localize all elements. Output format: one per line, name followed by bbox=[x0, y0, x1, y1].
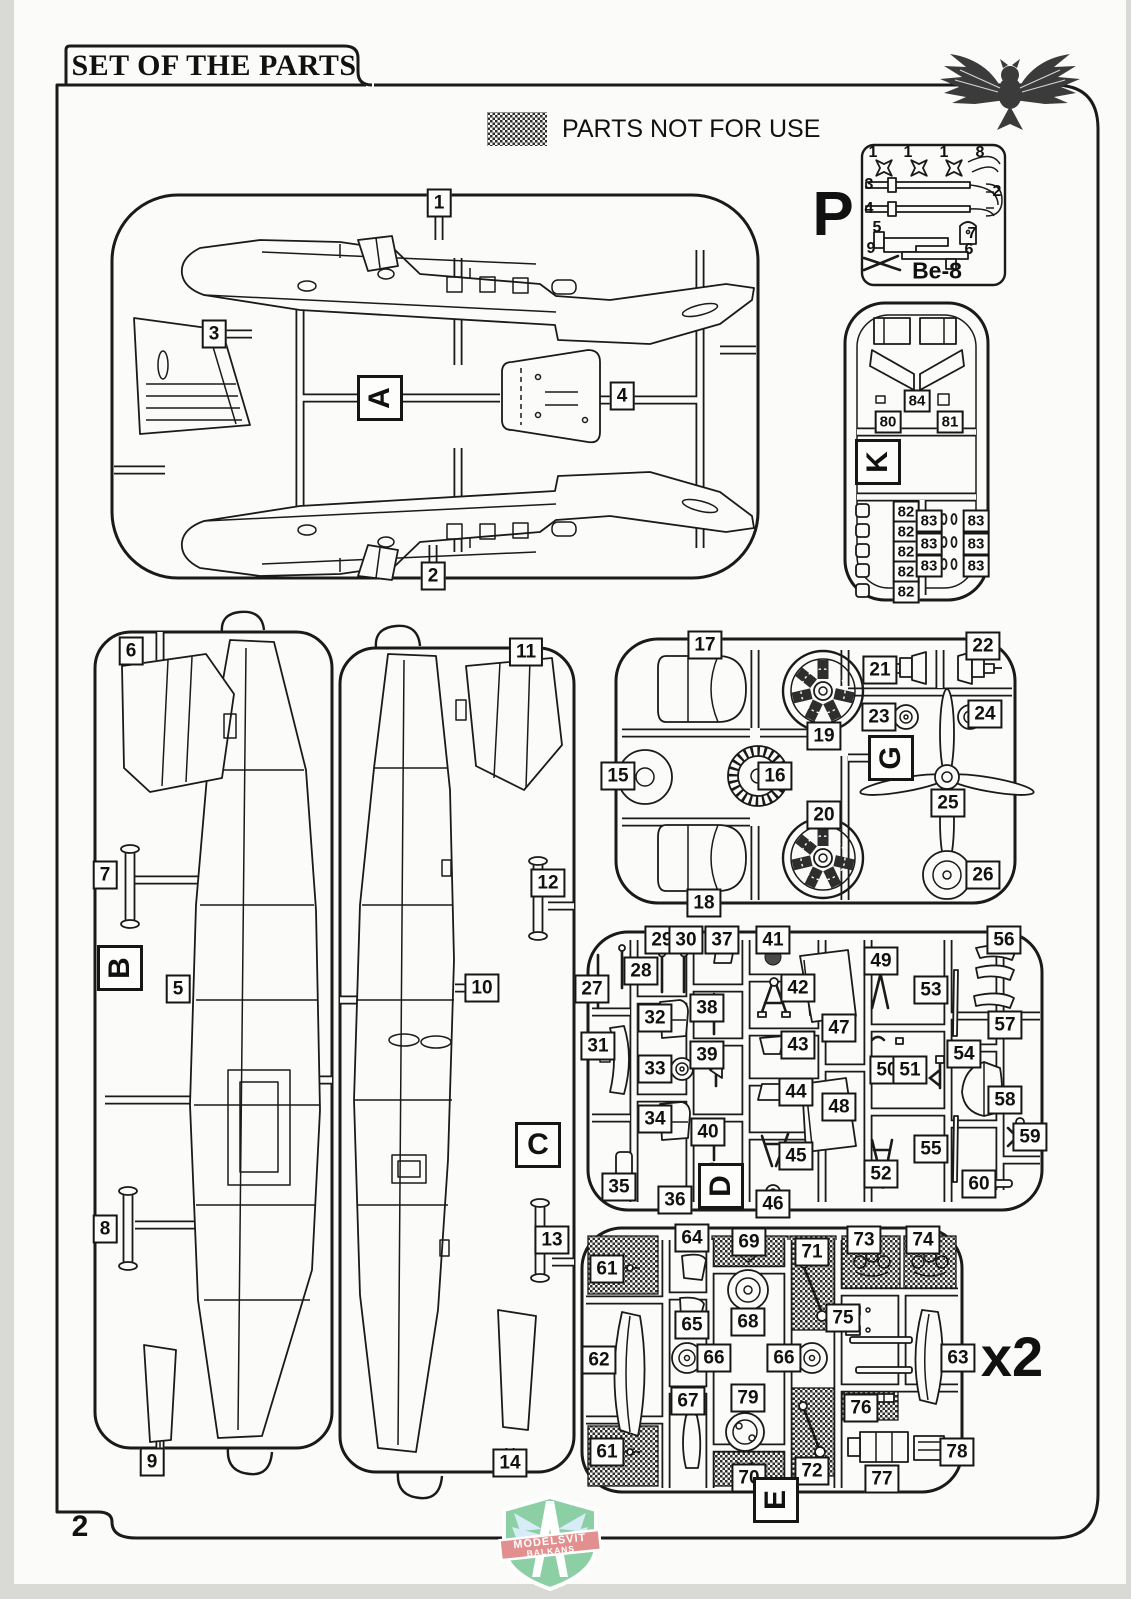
part-9-blade bbox=[144, 1345, 176, 1452]
part-number-label: 14 bbox=[492, 1449, 527, 1478]
part-number-label: 18 bbox=[686, 889, 721, 918]
part-number-label: 83 bbox=[916, 555, 943, 578]
part-number-label: 10 bbox=[464, 974, 499, 1003]
part-number-label: 41 bbox=[755, 926, 790, 955]
part-number-label: 83 bbox=[963, 555, 990, 578]
part-number-label: 64 bbox=[674, 1224, 709, 1253]
part-number-label: 80 bbox=[875, 411, 902, 434]
part-number-label: 45 bbox=[778, 1142, 813, 1171]
part-number-label: 7 bbox=[93, 861, 118, 890]
part-number-label: 53 bbox=[913, 976, 948, 1005]
sprue-letter-label: E bbox=[753, 1477, 799, 1523]
pe-part-number: 7 bbox=[968, 226, 977, 242]
page-title: SET OF THE PARTS bbox=[66, 46, 362, 85]
part-number-label: 28 bbox=[623, 957, 658, 986]
part-number-label: 82 bbox=[893, 581, 920, 604]
part-number-label: 51 bbox=[892, 1056, 927, 1085]
part-number-label: 31 bbox=[580, 1032, 615, 1061]
part-number-label: 57 bbox=[987, 1011, 1022, 1040]
sprue-letter-label: B bbox=[97, 945, 143, 991]
part-number-label: 2 bbox=[421, 562, 446, 591]
part-number-label: 8 bbox=[93, 1215, 118, 1244]
part-number-label: 21 bbox=[862, 656, 897, 685]
pe-part-number: 1 bbox=[904, 145, 913, 161]
part-number-label: 34 bbox=[637, 1105, 672, 1134]
part-number-label: 24 bbox=[967, 700, 1002, 729]
part-number-label: 63 bbox=[940, 1344, 975, 1373]
sprue-p-kit-name: Be-8 bbox=[912, 260, 962, 283]
part-number-label: 61 bbox=[589, 1255, 624, 1284]
part-number-label: 6 bbox=[119, 637, 144, 666]
part-number-label: 17 bbox=[687, 631, 722, 660]
part-number-label: 40 bbox=[690, 1118, 725, 1147]
sprue-letter-label: C bbox=[515, 1122, 561, 1168]
sprue-e-quantity-note: x2 bbox=[981, 1329, 1043, 1385]
part-number-label: 62 bbox=[581, 1346, 616, 1375]
part-number-label: 79 bbox=[730, 1384, 765, 1413]
part-number-label: 1 bbox=[427, 189, 452, 218]
part-number-label: 83 bbox=[916, 533, 943, 556]
sprue-letter-label: G bbox=[868, 735, 914, 781]
instruction-sheet-page: .o{fill:none;stroke:#1a1a1a;stroke-width… bbox=[0, 0, 1131, 1599]
part-number-label: 22 bbox=[965, 632, 1000, 661]
part-number-label: 38 bbox=[689, 994, 724, 1023]
part-number-label: 46 bbox=[755, 1190, 790, 1219]
part-6-nacelle bbox=[122, 654, 236, 792]
sprue-letter-label: P bbox=[812, 184, 853, 246]
part-number-label: 9 bbox=[140, 1448, 165, 1477]
pe-part-number: 5 bbox=[873, 220, 882, 236]
part-number-label: 61 bbox=[589, 1438, 624, 1467]
part-number-label: 54 bbox=[946, 1040, 981, 1069]
part-number-label: 83 bbox=[916, 510, 943, 533]
part-number-label: 67 bbox=[670, 1387, 705, 1416]
part-number-label: 71 bbox=[794, 1238, 829, 1267]
pe-part-number: 9 bbox=[867, 241, 876, 257]
part-number-label: 49 bbox=[863, 947, 898, 976]
part-number-label: 69 bbox=[731, 1228, 766, 1257]
part-number-label: 66 bbox=[766, 1344, 801, 1373]
page-number: 2 bbox=[72, 1512, 89, 1542]
part-number-label: 39 bbox=[689, 1041, 724, 1070]
not-for-use-swatch bbox=[487, 112, 547, 146]
part-number-label: 60 bbox=[961, 1170, 996, 1199]
part-4-cowling bbox=[502, 350, 600, 442]
part-number-label: 66 bbox=[696, 1344, 731, 1373]
part-number-label: 19 bbox=[806, 722, 841, 751]
part-number-label: 36 bbox=[657, 1186, 692, 1215]
part-number-label: 75 bbox=[825, 1304, 860, 1333]
part-number-label: 12 bbox=[530, 869, 565, 898]
pe-part-number: 4 bbox=[865, 201, 874, 217]
part-number-label: 4 bbox=[610, 382, 635, 411]
part-number-label: 72 bbox=[794, 1457, 829, 1486]
sprue-letter-label: A bbox=[357, 375, 403, 421]
part-number-label: 65 bbox=[674, 1311, 709, 1340]
part-number-label: 68 bbox=[730, 1308, 765, 1337]
part-number-label: 37 bbox=[704, 926, 739, 955]
part-number-label: 5 bbox=[166, 975, 191, 1004]
part-number-label: 15 bbox=[600, 762, 635, 791]
part-number-label: 76 bbox=[843, 1394, 878, 1423]
part-number-label: 11 bbox=[509, 638, 543, 667]
part-number-label: 35 bbox=[601, 1173, 636, 1202]
part-number-label: 42 bbox=[780, 974, 815, 1003]
part-number-label: 56 bbox=[986, 926, 1021, 955]
part-number-label: 83 bbox=[963, 533, 990, 556]
part-17-cowl bbox=[658, 656, 746, 722]
part-number-label: 47 bbox=[821, 1014, 856, 1043]
sprue-letter-label: K bbox=[855, 439, 901, 485]
part-number-label: 20 bbox=[806, 801, 841, 830]
pe-part-number: 6 bbox=[965, 242, 974, 258]
part-number-label: 30 bbox=[668, 926, 703, 955]
pe-part-number: 1 bbox=[869, 145, 878, 161]
part-number-label: 59 bbox=[1012, 1123, 1047, 1152]
part-number-label: 73 bbox=[846, 1226, 881, 1255]
part-number-label: 78 bbox=[939, 1438, 974, 1467]
part-number-label: 13 bbox=[534, 1226, 569, 1255]
part-number-label: 27 bbox=[574, 975, 609, 1004]
part-number-label: 25 bbox=[930, 789, 965, 818]
part-number-label: 58 bbox=[987, 1086, 1022, 1115]
part-number-label: 48 bbox=[821, 1093, 856, 1122]
pe-part-number: 3 bbox=[865, 177, 874, 193]
part-number-label: 81 bbox=[937, 411, 964, 434]
sprue-letter-label: D bbox=[698, 1163, 744, 1209]
part-number-label: 3 bbox=[202, 320, 227, 349]
part-number-label: 16 bbox=[757, 762, 792, 791]
part-number-label: 83 bbox=[963, 510, 990, 533]
part-number-label: 43 bbox=[780, 1031, 815, 1060]
part-number-label: 74 bbox=[905, 1226, 940, 1255]
legend-label: PARTS NOT FOR USE bbox=[562, 116, 820, 144]
part-26-wheel bbox=[923, 851, 971, 899]
part-number-label: 23 bbox=[861, 703, 896, 732]
part-23-wheel bbox=[894, 705, 918, 729]
pe-part-number: 2 bbox=[993, 184, 1002, 200]
part-number-label: 77 bbox=[864, 1465, 899, 1494]
part-18-cowl bbox=[658, 825, 746, 891]
part-number-label: 52 bbox=[863, 1160, 898, 1189]
part-number-label: 55 bbox=[913, 1135, 948, 1164]
part-number-label: 26 bbox=[965, 861, 1000, 890]
part-number-label: 44 bbox=[778, 1078, 813, 1107]
part-number-label: 84 bbox=[904, 390, 931, 413]
part-number-label: 33 bbox=[637, 1055, 672, 1084]
pe-part-number: 8 bbox=[976, 145, 985, 161]
part-number-label: 32 bbox=[637, 1004, 672, 1033]
pe-part-number: 1 bbox=[940, 145, 949, 161]
